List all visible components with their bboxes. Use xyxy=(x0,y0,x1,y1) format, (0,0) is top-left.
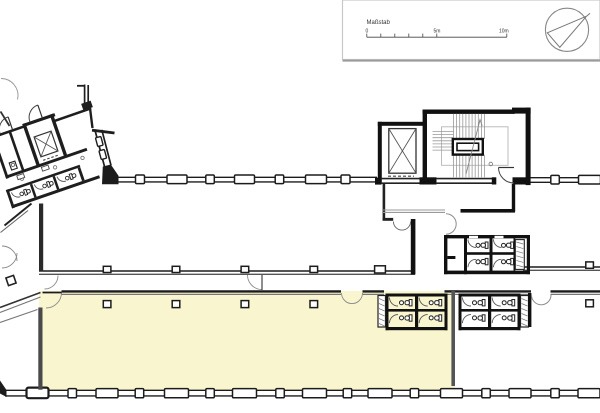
svg-text:Maßstab: Maßstab xyxy=(367,20,391,26)
svg-text:10m: 10m xyxy=(499,29,509,35)
